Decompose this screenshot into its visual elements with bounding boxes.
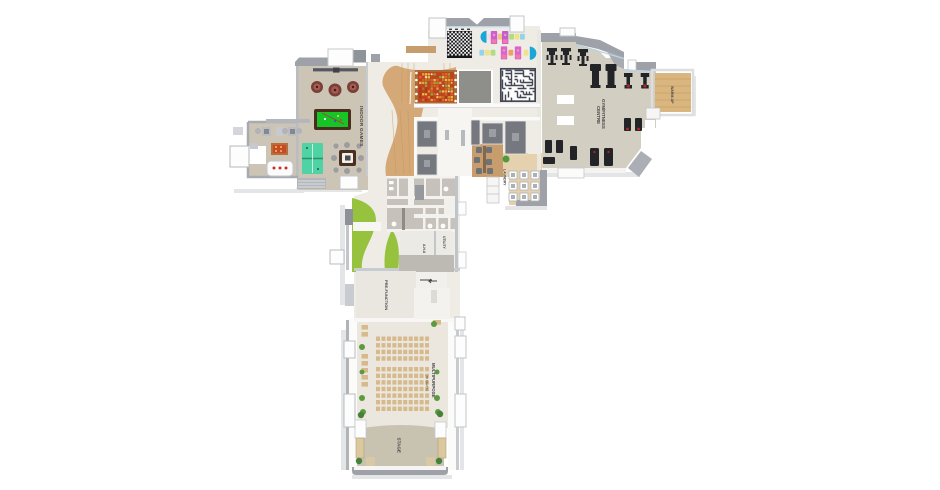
svg-text:A.H.U: A.H.U	[422, 244, 426, 254]
svg-text:CENTRE: CENTRE	[596, 106, 601, 124]
svg-text:PRE-FUNCTION: PRE-FUNCTION	[384, 280, 389, 310]
svg-text:(84 SEATS): (84 SEATS)	[425, 375, 429, 391]
svg-text:LAUNDRY: LAUNDRY	[503, 169, 507, 186]
svg-text:WARM-UP: WARM-UP	[670, 86, 674, 104]
svg-text:INDOOR GAMES: INDOOR GAMES	[358, 106, 364, 147]
svg-text:MULTIPURPOSE: MULTIPURPOSE	[431, 363, 436, 398]
svg-text:UTILITY: UTILITY	[442, 236, 446, 250]
svg-text:STAGE: STAGE	[397, 438, 402, 453]
